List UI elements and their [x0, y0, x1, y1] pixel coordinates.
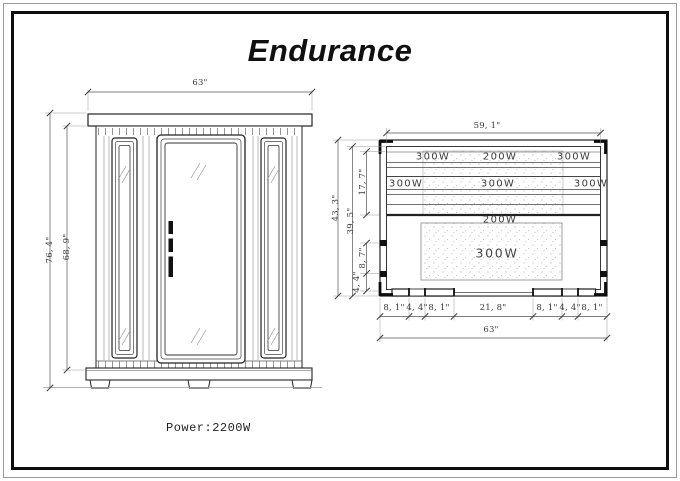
dim-plan-bench-depth: 17, 7"	[358, 169, 368, 196]
heater-label-row2-right: 300W	[574, 179, 608, 190]
dim-front-height-outer: 76, 4"	[45, 237, 55, 264]
dim-plan-height-outer: 43, 3"	[331, 195, 341, 222]
dim-plan-side-panel: 8, 7"	[358, 247, 368, 268]
front-view-drawing	[43, 89, 322, 391]
dim-plan-inner-width: 59, 1"	[474, 121, 501, 131]
right-glass-panel	[261, 138, 286, 358]
roof-crown	[88, 114, 312, 126]
product-title: Endurance	[0, 33, 660, 69]
dim-bottom-chain-3: 21, 8"	[480, 303, 507, 313]
heater-label-row1-right: 300W	[557, 152, 591, 163]
door-handle	[169, 221, 174, 277]
dim-front-width: 63"	[192, 78, 207, 88]
dim-plan-height-inner: 39, 5"	[346, 208, 356, 235]
drawing-sheet: Endurance 63" 76, 4" 68, 9" 59, 1" 43, 3…	[0, 0, 680, 481]
power-note: Power:2200W	[166, 421, 251, 435]
heater-label-row2-left: 300W	[389, 179, 423, 190]
heater-label-row2-center: 300W	[481, 179, 515, 190]
left-glass-panel	[112, 138, 137, 358]
glass-door	[157, 135, 245, 363]
heater-label-floor: 300W	[475, 246, 518, 261]
plan-front-wall	[392, 288, 596, 296]
feet	[90, 380, 312, 388]
dim-bottom-chain-2: 8, 1"	[428, 303, 449, 313]
heater-label-bench-front: 200W	[483, 215, 517, 226]
dim-bottom-chain-4: 8, 1"	[536, 303, 557, 313]
base-board	[86, 368, 312, 380]
dim-bottom-chain-0: 8, 1"	[383, 303, 404, 313]
sauna-technical-drawing	[0, 0, 680, 481]
dim-plan-total-width: 63"	[483, 325, 498, 335]
heater-label-row1-left: 300W	[416, 152, 450, 163]
dim-bottom-chain-5: 4, 4"	[559, 303, 580, 313]
heater-label-row1-center: 200W	[483, 152, 517, 163]
dim-plan-side-glass: 4, 4"	[352, 271, 362, 292]
dim-front-height-inner: 68, 9"	[62, 234, 72, 261]
dim-bottom-chain-6: 8, 1"	[581, 303, 602, 313]
dim-bottom-chain-1: 4, 4"	[406, 303, 427, 313]
